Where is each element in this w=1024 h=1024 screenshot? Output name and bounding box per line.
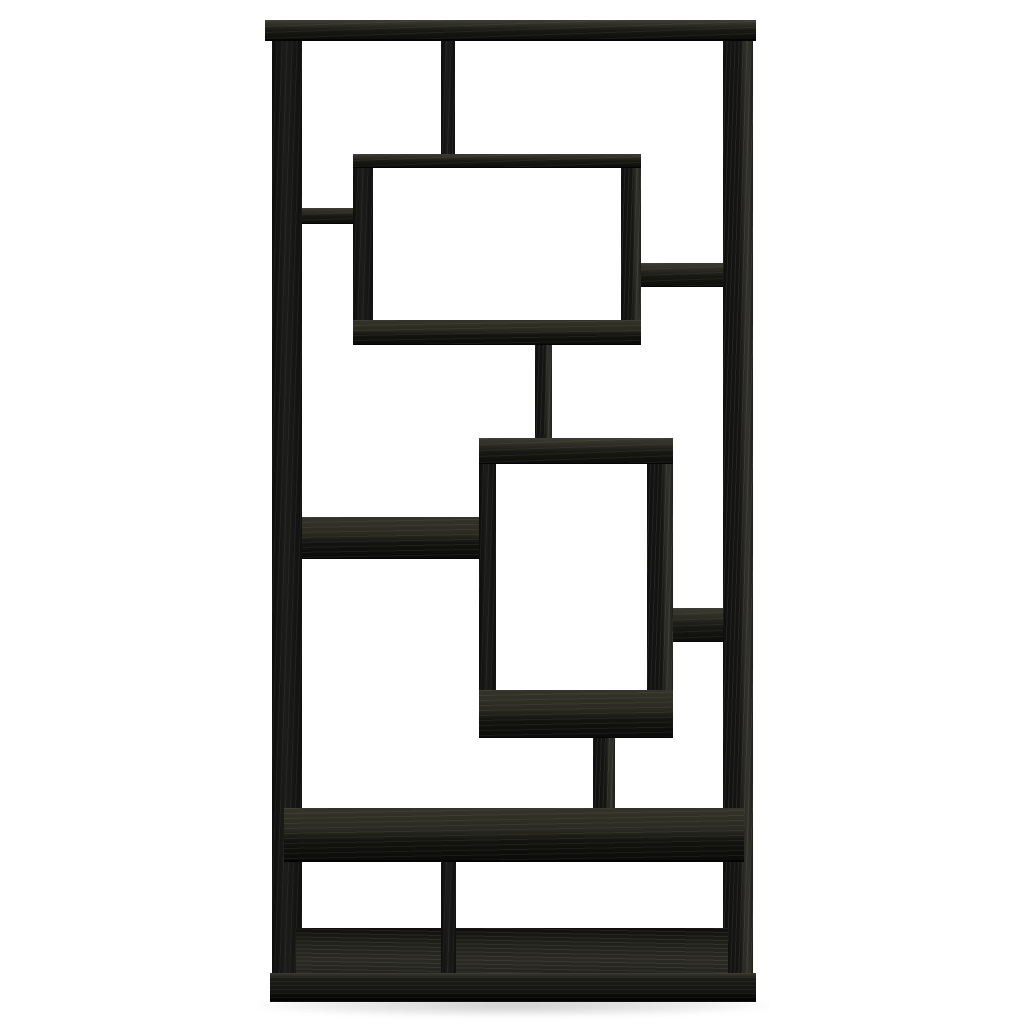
bottom-divider — [441, 858, 456, 974]
shelf-upper-right — [637, 263, 729, 287]
upper-cube-right-wall — [621, 154, 641, 344]
long-shelf — [284, 808, 744, 862]
lower-connector — [593, 735, 615, 810]
plinth-base — [270, 973, 756, 1002]
upper-cube-left-wall — [353, 154, 373, 344]
lower-cube-top — [479, 438, 673, 464]
upper-cube-top — [353, 154, 641, 168]
upper-cube-bottom — [353, 320, 641, 345]
top-center-divider — [441, 36, 455, 156]
bottom-floor-shelf — [296, 928, 728, 975]
lower-cube-bottom — [479, 690, 673, 738]
shelf-middle-left — [296, 517, 486, 559]
top-board — [265, 20, 756, 41]
shelf-upper-left — [296, 208, 358, 224]
center-connector — [535, 341, 552, 440]
bookshelf-product-photo — [0, 0, 1024, 1024]
